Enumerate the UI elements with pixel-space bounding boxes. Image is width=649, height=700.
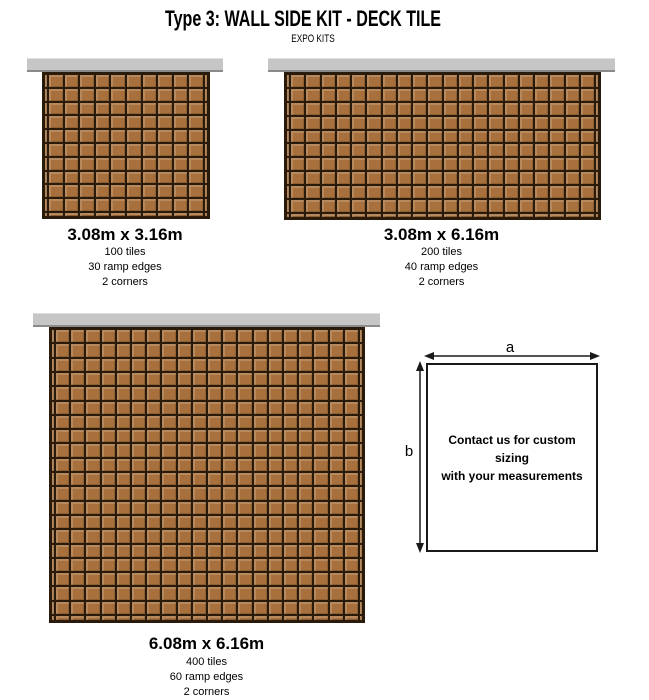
deck-tile: [565, 213, 580, 218]
deck-tile: [443, 171, 458, 185]
deck-tile: [595, 199, 599, 213]
deck-tile: [329, 558, 344, 572]
deck-tile: [519, 88, 534, 102]
deck-tile: [268, 558, 283, 572]
deck-tile: [321, 199, 336, 213]
deck-tile: [116, 515, 131, 529]
deck-tile: [329, 572, 344, 586]
deck-tile: [142, 143, 158, 157]
deck-tile: [565, 130, 580, 144]
deck-tile: [146, 358, 161, 372]
deck-tile: [192, 529, 207, 543]
deck-tile: [283, 544, 298, 558]
deck-tile: [329, 458, 344, 472]
deck-tile: [351, 157, 366, 171]
deck-tile: [177, 586, 192, 600]
deck-tile: [237, 401, 252, 415]
deck-tile: [237, 472, 252, 486]
deck-tile: [366, 185, 381, 199]
deck-tile: [177, 515, 192, 529]
deck-tile: [142, 157, 158, 171]
deck-tile: [298, 529, 313, 543]
deck-tile: [173, 212, 189, 217]
deck-tile: [237, 386, 252, 400]
deck-tile: [161, 572, 176, 586]
deck-tile: [177, 401, 192, 415]
deck-tile: [359, 601, 363, 615]
deck-tile: [344, 529, 359, 543]
deck-tile: [161, 529, 176, 543]
deck-tile: [237, 329, 252, 343]
deck-tile: [131, 486, 146, 500]
deck-tile: [359, 529, 363, 543]
deck-tile: [359, 501, 363, 515]
deck-tile: [192, 401, 207, 415]
deck-tile: [344, 458, 359, 472]
deck-tile: [85, 372, 100, 386]
deck-tile: [427, 116, 442, 130]
deck-tile: [313, 401, 328, 415]
deck-tile: [204, 115, 208, 129]
deck-tile: [488, 102, 503, 116]
deck-tile: [595, 185, 599, 199]
deck-tile: [161, 544, 176, 558]
deck-tile: [504, 171, 519, 185]
deck-tile: [101, 429, 116, 443]
deck-tile: [268, 343, 283, 357]
deck-tile: [283, 443, 298, 457]
deck-tile: [443, 143, 458, 157]
deck-tile: [313, 615, 328, 621]
deck-tile: [290, 157, 305, 171]
deck-tile: [95, 88, 111, 102]
deck-tile: [177, 443, 192, 457]
kit-stat-ramp-edges: 40 ramp edges: [268, 260, 615, 275]
deck-tile: [161, 429, 176, 443]
deck-tile: [253, 529, 268, 543]
deck-tile: [237, 601, 252, 615]
deck-tile: [443, 102, 458, 116]
deck-tile: [207, 558, 222, 572]
deck-tile: [222, 386, 237, 400]
wall-bar: [268, 58, 615, 72]
kit-stat-ramp-edges: 60 ramp edges: [33, 670, 380, 685]
deck-tile: [207, 429, 222, 443]
deck-tile: [283, 429, 298, 443]
deck-tile: [298, 415, 313, 429]
deck-tile: [366, 199, 381, 213]
deck-tile: [207, 529, 222, 543]
deck-tile: [359, 558, 363, 572]
deck-tile: [359, 486, 363, 500]
deck-tile: [253, 486, 268, 500]
deck-tile: [222, 544, 237, 558]
deck-tile: [55, 401, 70, 415]
deck-tile: [329, 429, 344, 443]
deck-tile: [313, 544, 328, 558]
deck-tile: [55, 443, 70, 457]
deck-tile: [344, 558, 359, 572]
deck-tile: [397, 199, 412, 213]
deck-tile: [595, 213, 599, 218]
deck-tile: [443, 157, 458, 171]
deck-tile: [283, 586, 298, 600]
deck-tile: [283, 343, 298, 357]
deck-tile: [101, 544, 116, 558]
kit-stat-tiles: 400 tiles: [33, 655, 380, 670]
deck-tile: [192, 458, 207, 472]
deck-tile: [116, 544, 131, 558]
deck-tile: [70, 372, 85, 386]
deck-tile: [329, 443, 344, 457]
deck-tile: [79, 171, 95, 185]
deck-tile: [116, 615, 131, 621]
deck-tile: [131, 443, 146, 457]
deck-tile: [70, 615, 85, 621]
deck-tile: [298, 458, 313, 472]
deck-tile: [344, 544, 359, 558]
deck-tile: [131, 458, 146, 472]
deck-tile: [549, 157, 564, 171]
deck-tile: [207, 458, 222, 472]
deck-tile: [412, 143, 427, 157]
deck-tile: [329, 529, 344, 543]
deck-tile: [412, 102, 427, 116]
deck-tile: [488, 88, 503, 102]
deck-tile: [313, 501, 328, 515]
deck-tile: [161, 501, 176, 515]
deck-tile: [397, 130, 412, 144]
deck-tile: [268, 415, 283, 429]
deck-tile: [55, 544, 70, 558]
deck-tile: [313, 415, 328, 429]
deck-tile: [101, 615, 116, 621]
deck-tile: [116, 601, 131, 615]
deck-tile: [366, 130, 381, 144]
deck-tile: [253, 386, 268, 400]
deck-tile: [116, 472, 131, 486]
deck-tile: [290, 88, 305, 102]
deck-tile: [85, 443, 100, 457]
kit-stats: 100 tiles 30 ramp edges 2 corners: [27, 245, 223, 290]
deck-tile: [290, 74, 305, 88]
deck-tile: [313, 386, 328, 400]
deck-tile: [222, 501, 237, 515]
deck-tile: [580, 143, 595, 157]
deck-tile: [222, 415, 237, 429]
deck-tile: [161, 558, 176, 572]
deck-tile: [64, 212, 80, 217]
deck-tile: [131, 358, 146, 372]
deck-tile: [313, 358, 328, 372]
deck-tile: [116, 458, 131, 472]
deck-tile: [192, 358, 207, 372]
deck-tile: [549, 185, 564, 199]
deck-tile: [85, 358, 100, 372]
deck-tile: [268, 372, 283, 386]
deck-tile: [126, 184, 142, 198]
deck-tile: [488, 116, 503, 130]
deck-tile: [595, 130, 599, 144]
deck-tile: [146, 515, 161, 529]
deck-tile: [222, 429, 237, 443]
deck-tile: [146, 586, 161, 600]
deck-tile: [131, 601, 146, 615]
deck-tile: [188, 115, 204, 129]
deck-tile: [565, 74, 580, 88]
kit-stat-tiles: 100 tiles: [27, 245, 223, 260]
deck-tile: [321, 213, 336, 218]
deck-tile: [443, 199, 458, 213]
deck-tile: [549, 199, 564, 213]
deck-tile: [253, 558, 268, 572]
deck-tile: [253, 358, 268, 372]
deck-tile: [412, 185, 427, 199]
wall-bar: [27, 58, 223, 72]
deck-tile: [177, 615, 192, 621]
deck-tile: [55, 358, 70, 372]
deck-tile: [131, 401, 146, 415]
custom-sizing-message-line1: Contact us for custom sizing: [434, 431, 590, 467]
deck-tile: [131, 515, 146, 529]
deck-tile: [116, 429, 131, 443]
deck-tile: [397, 185, 412, 199]
deck-tile: [313, 558, 328, 572]
deck-tile: [237, 501, 252, 515]
deck-tile: [351, 116, 366, 130]
deck-tile: [549, 116, 564, 130]
deck-tile: [101, 501, 116, 515]
deck-tile: [344, 329, 359, 343]
deck-tile: [188, 143, 204, 157]
deck-tile: [126, 212, 142, 217]
deck-tile: [313, 529, 328, 543]
deck-tile: [427, 74, 442, 88]
deck-tile: [351, 171, 366, 185]
deck-tile: [382, 213, 397, 218]
deck-tile: [336, 185, 351, 199]
deck-tile: [458, 185, 473, 199]
deck-tile: [116, 529, 131, 543]
deck-tile: [458, 116, 473, 130]
deck-tile: [298, 515, 313, 529]
deck-tile: [237, 544, 252, 558]
deck-tile: [268, 615, 283, 621]
deck-tile: [204, 212, 208, 217]
deck-tile: [48, 74, 64, 88]
deck-tile: [473, 74, 488, 88]
deck-tile: [70, 458, 85, 472]
deck-tile: [116, 443, 131, 457]
deck-tile: [382, 88, 397, 102]
deck-tile: [366, 171, 381, 185]
deck-tile: [142, 74, 158, 88]
kit-dimensions-label: 3.08m x 3.16m: [27, 225, 223, 245]
deck-tile: [173, 198, 189, 212]
deck-tile: [412, 116, 427, 130]
deck-tile: [473, 157, 488, 171]
deck-tile: [146, 443, 161, 457]
deck-tile: [305, 213, 320, 218]
deck-tile: [146, 601, 161, 615]
deck-tile: [237, 372, 252, 386]
deck-tile: [204, 129, 208, 143]
deck-tile: [55, 372, 70, 386]
deck-tile: [344, 586, 359, 600]
deck-tile: [101, 586, 116, 600]
deck-tile: [222, 458, 237, 472]
deck-tile: [382, 199, 397, 213]
deck-tile: [382, 102, 397, 116]
deck-tile: [55, 572, 70, 586]
deck-tile: [95, 212, 111, 217]
deck-tile: [222, 586, 237, 600]
deck-tile: [329, 486, 344, 500]
deck-tile: [177, 329, 192, 343]
deck-tile: [204, 143, 208, 157]
deck-tile: [116, 329, 131, 343]
deck-tile: [565, 116, 580, 130]
deck-tile: [321, 102, 336, 116]
deck-tile: [177, 544, 192, 558]
deck-tile: [222, 443, 237, 457]
deck-tile: [336, 199, 351, 213]
deck-tile: [173, 74, 189, 88]
deck-tile: [110, 115, 126, 129]
deck-tile: [359, 472, 363, 486]
deck-tile: [313, 601, 328, 615]
deck-tile: [283, 501, 298, 515]
kit-dimensions-label: 6.08m x 6.16m: [33, 634, 380, 654]
deck-tile: [504, 213, 519, 218]
deck-tile: [595, 157, 599, 171]
deck-tile: [116, 358, 131, 372]
deck-tile: [397, 74, 412, 88]
deck-tile: [222, 601, 237, 615]
deck-tile: [344, 429, 359, 443]
deck-tile: [48, 115, 64, 129]
deck-tile: [344, 472, 359, 486]
deck-tile: [207, 358, 222, 372]
deck-tile: [70, 515, 85, 529]
deck-tile: [207, 501, 222, 515]
deck-tile: [173, 184, 189, 198]
deck-tile: [55, 343, 70, 357]
deck-tile: [504, 143, 519, 157]
deck-tile: [253, 401, 268, 415]
deck-tile: [146, 558, 161, 572]
deck-tile: [268, 458, 283, 472]
deck-tile: [336, 102, 351, 116]
deck-tile: [222, 558, 237, 572]
deck-tile: [101, 572, 116, 586]
kit-stats: 400 tiles 60 ramp edges 2 corners: [33, 655, 380, 700]
deck-tile: [329, 501, 344, 515]
deck-tile: [283, 401, 298, 415]
deck-tile: [146, 472, 161, 486]
kit-stat-tiles: 200 tiles: [268, 245, 615, 260]
deck-tile: [344, 443, 359, 457]
deck-tile: [188, 184, 204, 198]
deck-tile: [95, 115, 111, 129]
deck-tile: [397, 143, 412, 157]
deck-tile: [458, 143, 473, 157]
deck-tile: [207, 443, 222, 457]
deck-tile: [344, 572, 359, 586]
deck-tile: [161, 601, 176, 615]
deck-tile: [519, 185, 534, 199]
deck-tile: [595, 116, 599, 130]
deck-tile: [161, 329, 176, 343]
deck-tile: [458, 88, 473, 102]
deck-tile: [329, 601, 344, 615]
deck-tile: [290, 143, 305, 157]
deck-tile: [382, 74, 397, 88]
deck-tile: [70, 329, 85, 343]
deck-tile: [359, 329, 363, 343]
deck-tile: [283, 515, 298, 529]
deck-tile: [366, 88, 381, 102]
deck-tile: [595, 143, 599, 157]
deck-tile: [126, 88, 142, 102]
deck-tile: [237, 443, 252, 457]
deck-tile: [504, 74, 519, 88]
deck-tile: [268, 544, 283, 558]
deck-tile: [192, 486, 207, 500]
deck-tile: [101, 486, 116, 500]
deck-tile: [48, 102, 64, 116]
deck-tile: [253, 544, 268, 558]
deck-tile: [412, 213, 427, 218]
deck-tile: [268, 472, 283, 486]
deck-tile: [253, 343, 268, 357]
deck-tile: [204, 171, 208, 185]
deck-tile: [64, 74, 80, 88]
deck-tile: [359, 372, 363, 386]
deck-tile: [290, 199, 305, 213]
deck-tile: [237, 586, 252, 600]
deck-tile: [473, 116, 488, 130]
deck-tile: [359, 586, 363, 600]
deck-tile: [207, 586, 222, 600]
deck-tile: [268, 386, 283, 400]
deck-tile: [519, 171, 534, 185]
deck-tile: [321, 143, 336, 157]
deck-tile: [473, 185, 488, 199]
deck-tile: [207, 515, 222, 529]
deck-tile: [253, 572, 268, 586]
deck-tile: [549, 171, 564, 185]
deck-tile: [101, 401, 116, 415]
deck-tile: [177, 458, 192, 472]
deck-tile: [192, 429, 207, 443]
deck-tile: [146, 544, 161, 558]
deck-tile: [298, 601, 313, 615]
deck-tile: [382, 171, 397, 185]
deck-tile: [131, 572, 146, 586]
deck-tile: [359, 401, 363, 415]
deck-tile: [253, 615, 268, 621]
deck-tile: [85, 386, 100, 400]
deck-tile: [146, 401, 161, 415]
deck-tile: [161, 343, 176, 357]
deck-tile: [55, 415, 70, 429]
deck-tile: [110, 129, 126, 143]
deck-tile: [177, 358, 192, 372]
deck-tile: [85, 343, 100, 357]
deck-tile: [192, 615, 207, 621]
deck-tile: [519, 74, 534, 88]
